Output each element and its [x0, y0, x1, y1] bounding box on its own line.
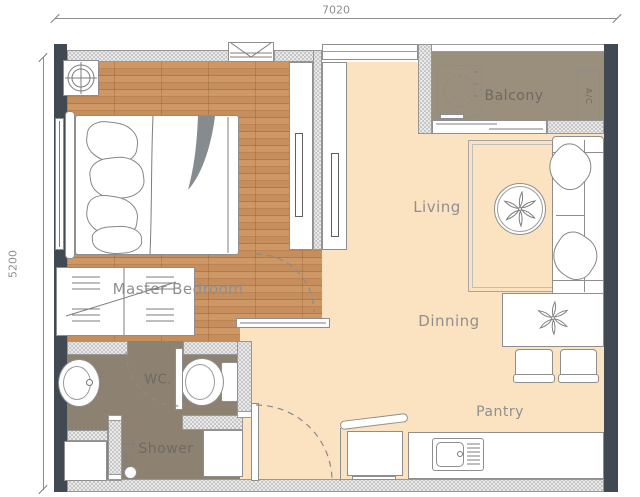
floor-plan: 7020 5200 A/C [0, 0, 640, 497]
bathroom-wall [67, 430, 108, 441]
wall-joint [108, 474, 122, 480]
bedroom-threshold-door [236, 318, 330, 328]
ceiling-light [63, 60, 99, 96]
wc-right-wall [237, 341, 252, 418]
width-dimension-label: 7020 [322, 4, 350, 17]
wc-wall [67, 341, 128, 355]
refrigerator-side-line [340, 428, 341, 481]
room-label-wc: WC. [144, 373, 172, 388]
bedroom-tv [295, 133, 303, 217]
right-wall [604, 44, 618, 492]
ac-label: A/C [584, 88, 593, 105]
wardrobe [56, 267, 195, 336]
dining-chair-back [558, 374, 599, 383]
bottom-wall [67, 479, 604, 492]
floor-drain [124, 466, 137, 479]
room-label-pantry: Pantry [476, 404, 524, 420]
living-window-line [322, 51, 418, 52]
living-window [322, 44, 418, 60]
height-dimension-label: 5200 [7, 250, 20, 278]
coffee-table-inner [497, 186, 543, 232]
room-label-master-bedroom: Master Bedroom [113, 280, 244, 298]
shower-storage-box [203, 430, 243, 477]
basin-faucet [86, 379, 93, 386]
tv-partition-wall [313, 50, 322, 250]
washing-machine-base [440, 114, 464, 119]
sofa-cushion-divider [556, 215, 584, 216]
washing-machine-drum [443, 75, 475, 107]
living-tv [331, 153, 339, 237]
wc-wall [183, 341, 240, 355]
bedroom-side-window [55, 118, 64, 250]
bed-headboard [65, 111, 75, 259]
balcony-bottom-wall [547, 120, 604, 134]
wc-door-leaf [175, 348, 183, 410]
balcony-pier-wall [418, 44, 432, 134]
balcony-sliding-door [432, 120, 547, 134]
room-label-dinning: Dinning [418, 312, 479, 330]
top-dimension-line [55, 18, 617, 19]
wall-joint [108, 415, 122, 421]
balcony-railing [432, 44, 604, 52]
left-dimension-line [43, 57, 44, 490]
bathroom-cabinet [64, 441, 107, 481]
entrance-door-leaf [251, 403, 259, 481]
sink-faucet [457, 451, 463, 457]
awning-window [228, 42, 274, 62]
air-conditioner: A/C [577, 70, 600, 122]
room-label-shower: Shower [138, 441, 193, 457]
refrigerator-base [352, 476, 396, 480]
dining-chair-back [513, 374, 555, 383]
room-label-living: Living [413, 198, 461, 216]
bathroom-mid-wall [182, 415, 243, 430]
wall-joint [237, 411, 252, 418]
dining-table [502, 293, 604, 347]
room-label-balcony: Balcony [485, 88, 544, 104]
refrigerator [347, 431, 403, 476]
shower-wall [108, 415, 122, 481]
toilet-seat [185, 364, 215, 400]
